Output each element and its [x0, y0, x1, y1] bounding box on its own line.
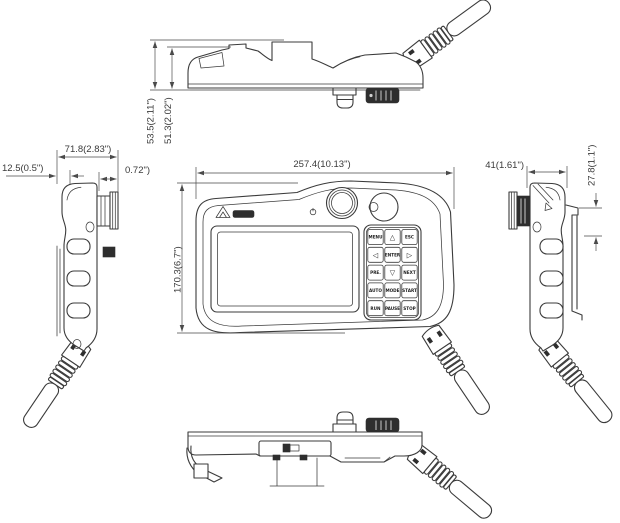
- dim-top-body-height-label: 51.3(2.02"): [163, 97, 174, 144]
- connector-icon: [283, 444, 290, 452]
- right-side-view: 41(1.61") 27.8(1.1"): [485, 145, 617, 428]
- key-mode-label: MODE: [385, 288, 399, 293]
- membrane-keypad: MENU △ ESC ◁ ENTER ▷ PRE. ▽ NEXT AUTO MO…: [364, 225, 421, 320]
- key-start-label: START: [402, 288, 417, 293]
- top-view: 53.5(2.11") 51.3(2.02"): [146, 0, 496, 144]
- selector-knob: [369, 193, 398, 221]
- down-arrow-icon: ▽: [390, 269, 396, 277]
- dim-left-offset-label: 12.5(0.5"): [2, 163, 43, 174]
- key-pause-label: PAUSE: [385, 306, 400, 311]
- bottom-view-hook-foot: [194, 464, 208, 478]
- top-view-body-outline: [188, 42, 423, 88]
- up-arrow-icon: △: [390, 234, 396, 242]
- dim-left-depth-label: 71.8(2.83"): [65, 144, 112, 155]
- cable: [420, 323, 495, 419]
- connector-bay: [259, 441, 331, 456]
- left-view-handle-bar: [57, 246, 60, 336]
- estop-side-profile: [333, 88, 356, 108]
- key-menu-label: MENU: [369, 235, 384, 240]
- left-side-view: 71.8(2.83") 12.5(0.5") 0.72"): [2, 144, 150, 432]
- cable: [405, 442, 497, 523]
- front-view: MENU △ ESC ◁ ENTER ▷ PRE. ▽ NEXT AUTO MO…: [173, 159, 496, 419]
- stand-outline: [270, 455, 324, 486]
- left-arrow-icon: ◁: [373, 251, 379, 259]
- cable: [18, 336, 93, 432]
- key-stop-label: STOP: [403, 306, 416, 311]
- dim-right-top-offset-label: 27.8(1.1"): [587, 145, 598, 186]
- key-esc-label: ESC: [405, 235, 414, 240]
- dim-right-depth-label: 41(1.61"): [485, 160, 524, 171]
- dim-front-width-label: 257.4(10.13"): [293, 159, 350, 170]
- key-run-label: RUN: [370, 306, 381, 311]
- right-view-belt-clip: [566, 205, 582, 320]
- cable: [537, 335, 618, 428]
- right-arrow-icon: ▷: [407, 251, 413, 259]
- key-pre-label: PRE.: [370, 270, 381, 275]
- drawing-canvas: 53.5(2.11") 51.3(2.02") 71.8(2.83"): [0, 0, 620, 523]
- right-view-body-outline: [530, 183, 565, 351]
- estop-side-profile: [333, 412, 356, 432]
- right-view-knob: [509, 192, 530, 229]
- key-auto-label: AUTO: [369, 288, 382, 293]
- emergency-stop-button: [327, 188, 358, 219]
- left-view-knob: [97, 192, 118, 257]
- dim-front-height-label: 170.3(6.7"): [173, 246, 184, 293]
- thumbwheel-side: [366, 418, 399, 432]
- screen-surface: [218, 232, 353, 306]
- dim-top-total-height-label: 53.5(2.11"): [146, 98, 157, 144]
- left-view-grip-ribs: [67, 239, 90, 318]
- bottom-view: [187, 412, 497, 523]
- key-next-label: NEXT: [403, 270, 416, 275]
- thumbwheel-side: [366, 88, 399, 103]
- dim-left-knob-label: 0.72"): [125, 165, 150, 176]
- pendant-dimension-drawing: 53.5(2.11") 51.3(2.02") 71.8(2.83"): [0, 0, 620, 523]
- display-screen: [211, 226, 359, 312]
- right-view-grip-ribs: [540, 239, 563, 318]
- left-view-body-outline: [62, 183, 97, 351]
- logo-wordmark: [233, 211, 254, 218]
- key-enter-label: ENTER: [385, 252, 401, 257]
